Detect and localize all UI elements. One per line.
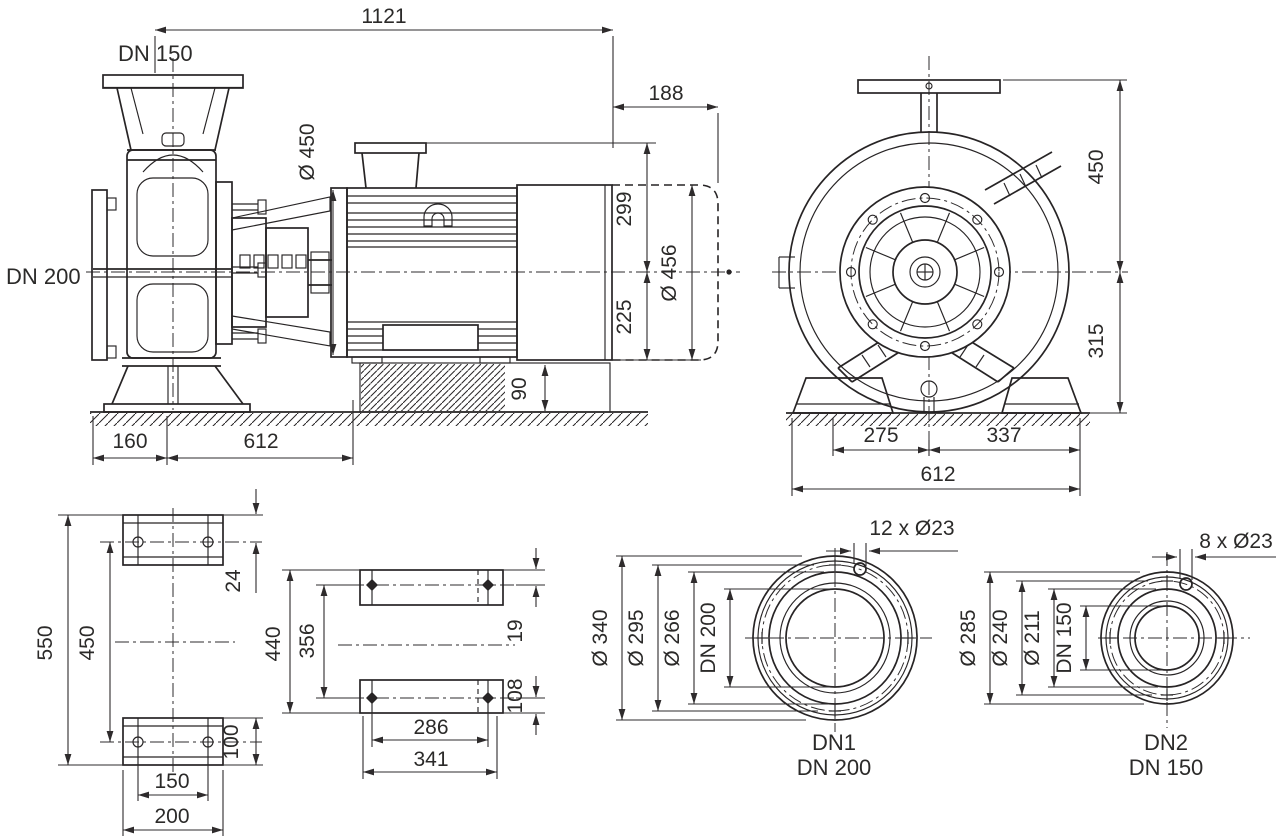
dim-label-footprint-pad-length: 341 bbox=[413, 748, 448, 771]
caption-dn1-size: DN 200 bbox=[797, 755, 872, 780]
dim-label-motor-extension: 188 bbox=[648, 82, 683, 105]
caption-dn2-size: DN 150 bbox=[1129, 755, 1204, 780]
dim-label-footprint-bolt-spacing: 286 bbox=[413, 716, 448, 739]
dim-label-edge-to-bolt-top: 19 bbox=[504, 619, 527, 642]
dim-label-center-to-flange-top: 450 bbox=[1085, 149, 1108, 184]
dim-label-center-to-bottom: 225 bbox=[613, 299, 636, 334]
technical-drawing-canvas: DN 150 DN 200 1121 188 Ø 450 299 225 Ø 4… bbox=[0, 0, 1280, 839]
dim-label-dn2-raised-face: Ø 211 bbox=[1021, 610, 1044, 666]
dim-label-footprint-width: 440 bbox=[262, 626, 285, 661]
port-label-dn150: DN 150 bbox=[118, 41, 193, 66]
side-view bbox=[86, 58, 740, 426]
dim-label-left-foot: 275 bbox=[863, 424, 898, 447]
dim-label-pad-offset: 24 bbox=[222, 569, 245, 593]
callout-bolt-holes-dn1: 12 x Ø23 bbox=[869, 517, 954, 540]
dim-label-dn1-bore: DN 200 bbox=[697, 602, 720, 673]
callout-bolt-holes-dn2: 8 x Ø23 bbox=[1199, 530, 1273, 553]
footprint-view: 440 356 19 108 286 341 bbox=[262, 548, 545, 779]
dim-label-pedestal-bolt-spacing: 150 bbox=[154, 770, 189, 793]
dim-label-dn1-outer: Ø 340 bbox=[589, 609, 612, 666]
port-label-dn200: DN 200 bbox=[6, 264, 81, 289]
dim-label-edge-to-bolt-bottom: 108 bbox=[504, 678, 527, 713]
dim-label-pedestal-height: 550 bbox=[34, 625, 57, 660]
lifting-eye bbox=[424, 204, 452, 226]
dim-label-footprint-bolt-span: 356 bbox=[296, 623, 319, 658]
dim-label-pedestal-bolt-height: 450 bbox=[76, 625, 99, 660]
flange-dn1-view: 12 x Ø23 Ø 340 Ø 295 Ø 266 DN 200 DN1 DN… bbox=[589, 517, 958, 780]
pump-dimensional-drawing: DN 150 DN 200 1121 188 Ø 450 299 225 Ø 4… bbox=[0, 0, 1280, 839]
motor-nameplate bbox=[383, 325, 478, 350]
dim-label-suction-to-center: 160 bbox=[112, 430, 147, 453]
pedestal-view: 550 450 24 100 150 200 bbox=[34, 489, 263, 836]
dim-label-center-to-top: 299 bbox=[613, 191, 636, 226]
caption-dn1: DN1 bbox=[812, 730, 856, 755]
dim-label-front-base-width: 612 bbox=[920, 463, 955, 486]
dim-label-motor-diameter: Ø 450 bbox=[296, 123, 319, 180]
terminal-box bbox=[355, 143, 426, 153]
dim-label-dn1-bolt-circle: Ø 295 bbox=[625, 609, 648, 666]
dim-label-center-to-base: 315 bbox=[1085, 323, 1108, 358]
dim-label-dn1-raised-face: Ø 266 bbox=[661, 609, 684, 666]
dim-label-dn2-bolt-circle: Ø 240 bbox=[989, 609, 1012, 666]
flange-dn2-view: 8 x Ø23 Ø 285 Ø 240 Ø 211 DN 150 DN2 DN … bbox=[957, 530, 1276, 780]
dim-label-dn2-outer: Ø 285 bbox=[957, 609, 980, 666]
dim-label-right-foot: 337 bbox=[986, 424, 1021, 447]
caption-dn2: DN2 bbox=[1144, 730, 1188, 755]
dim-label-dn2-bore: DN 150 bbox=[1053, 602, 1076, 673]
dim-label-foundation-height: 90 bbox=[508, 377, 531, 400]
dim-label-bottom-pad-height: 100 bbox=[220, 724, 243, 759]
dim-label-pad-width: 200 bbox=[154, 805, 189, 828]
dim-label-alt-motor-diameter: Ø 456 bbox=[658, 244, 681, 301]
dim-label-base-length: 612 bbox=[243, 430, 278, 453]
front-view bbox=[772, 56, 1128, 452]
dim-label-overall-length: 1121 bbox=[361, 5, 406, 28]
